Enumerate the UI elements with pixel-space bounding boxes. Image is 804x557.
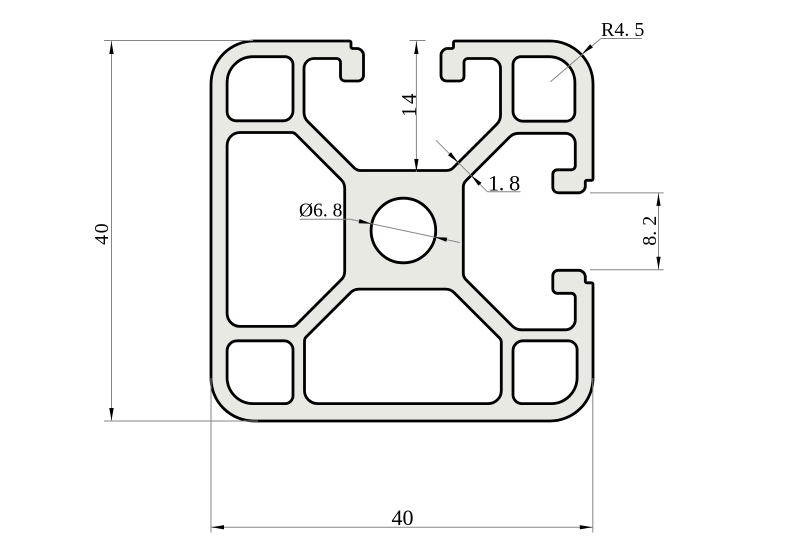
svg-text:R4. 5: R4. 5 xyxy=(601,19,644,41)
svg-text:40: 40 xyxy=(392,505,414,530)
svg-text:Ø6. 8: Ø6. 8 xyxy=(299,201,342,222)
svg-text:14: 14 xyxy=(397,91,421,117)
svg-text:1. 8: 1. 8 xyxy=(488,171,520,196)
svg-text:8. 2: 8. 2 xyxy=(639,216,661,246)
svg-text:40: 40 xyxy=(91,222,113,245)
